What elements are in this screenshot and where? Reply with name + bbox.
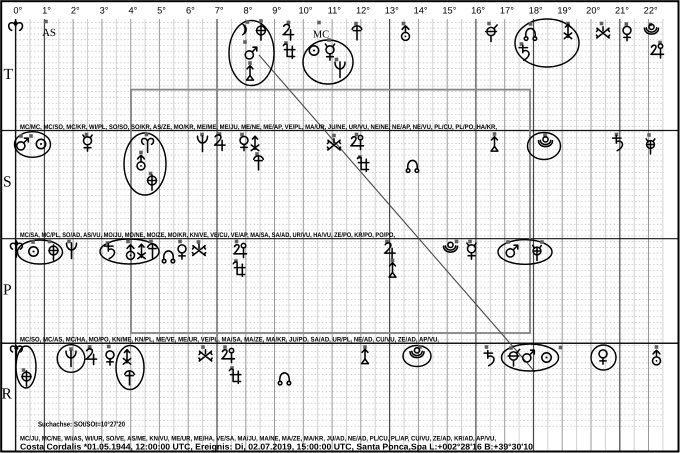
svg-text:21°: 21° xyxy=(615,6,629,16)
svg-text:15°: 15° xyxy=(442,6,456,16)
svg-text:18°: 18° xyxy=(529,6,543,16)
svg-text:19°: 19° xyxy=(557,6,571,16)
svg-text:MC: MC xyxy=(313,30,329,41)
svg-text:17°: 17° xyxy=(500,6,514,16)
svg-text:6°: 6° xyxy=(186,6,195,16)
svg-text:S: S xyxy=(3,174,12,191)
svg-text:7°: 7° xyxy=(215,6,224,16)
svg-text:3°: 3° xyxy=(100,6,109,16)
svg-text:MC/MC, MC/SO, MC/KR, WI/PL, SO: MC/MC, MC/SO, MC/KR, WI/PL, SO/SO, SO/KR… xyxy=(20,124,497,131)
svg-text:4°: 4° xyxy=(128,6,137,16)
svg-text:2°: 2° xyxy=(71,6,80,16)
svg-text:16°: 16° xyxy=(471,6,485,16)
svg-text:13°: 13° xyxy=(385,6,399,16)
svg-text:Costa Cordalis *01.05.1944, 1: Costa Cordalis *01.05.1944, 12:00:00 UTC… xyxy=(20,442,533,452)
svg-text:9°: 9° xyxy=(272,6,281,16)
svg-text:14°: 14° xyxy=(414,6,428,16)
svg-text:20°: 20° xyxy=(586,6,600,16)
svg-text:12°: 12° xyxy=(356,6,370,16)
svg-text:0°: 0° xyxy=(13,6,22,16)
svg-text:MC/SA, MC/PL, SO/AD, AS/VU, MO: MC/SA, MC/PL, SO/AD, AS/VU, MO/JU, MO/NE… xyxy=(20,232,395,239)
svg-text:1°: 1° xyxy=(42,6,51,16)
svg-text:10°: 10° xyxy=(298,6,312,16)
svg-text:AS: AS xyxy=(42,27,56,39)
svg-text:R: R xyxy=(2,386,13,403)
svg-text:22°: 22° xyxy=(644,6,658,16)
svg-text:MC/SO, MC/AS, MC/HA, MO/PO, KN: MC/SO, MC/AS, MC/HA, MO/PO, KN/ME, KN/PL… xyxy=(20,337,439,344)
svg-text:P: P xyxy=(3,282,12,299)
svg-text:T: T xyxy=(4,66,14,83)
svg-text:5°: 5° xyxy=(157,6,166,16)
svg-text:11°: 11° xyxy=(328,6,342,16)
svg-text:8°: 8° xyxy=(244,6,253,16)
svg-text:Suchachse: SOt/SOt=10°27'20: Suchachse: SOt/SOt=10°27'20 xyxy=(38,420,125,429)
